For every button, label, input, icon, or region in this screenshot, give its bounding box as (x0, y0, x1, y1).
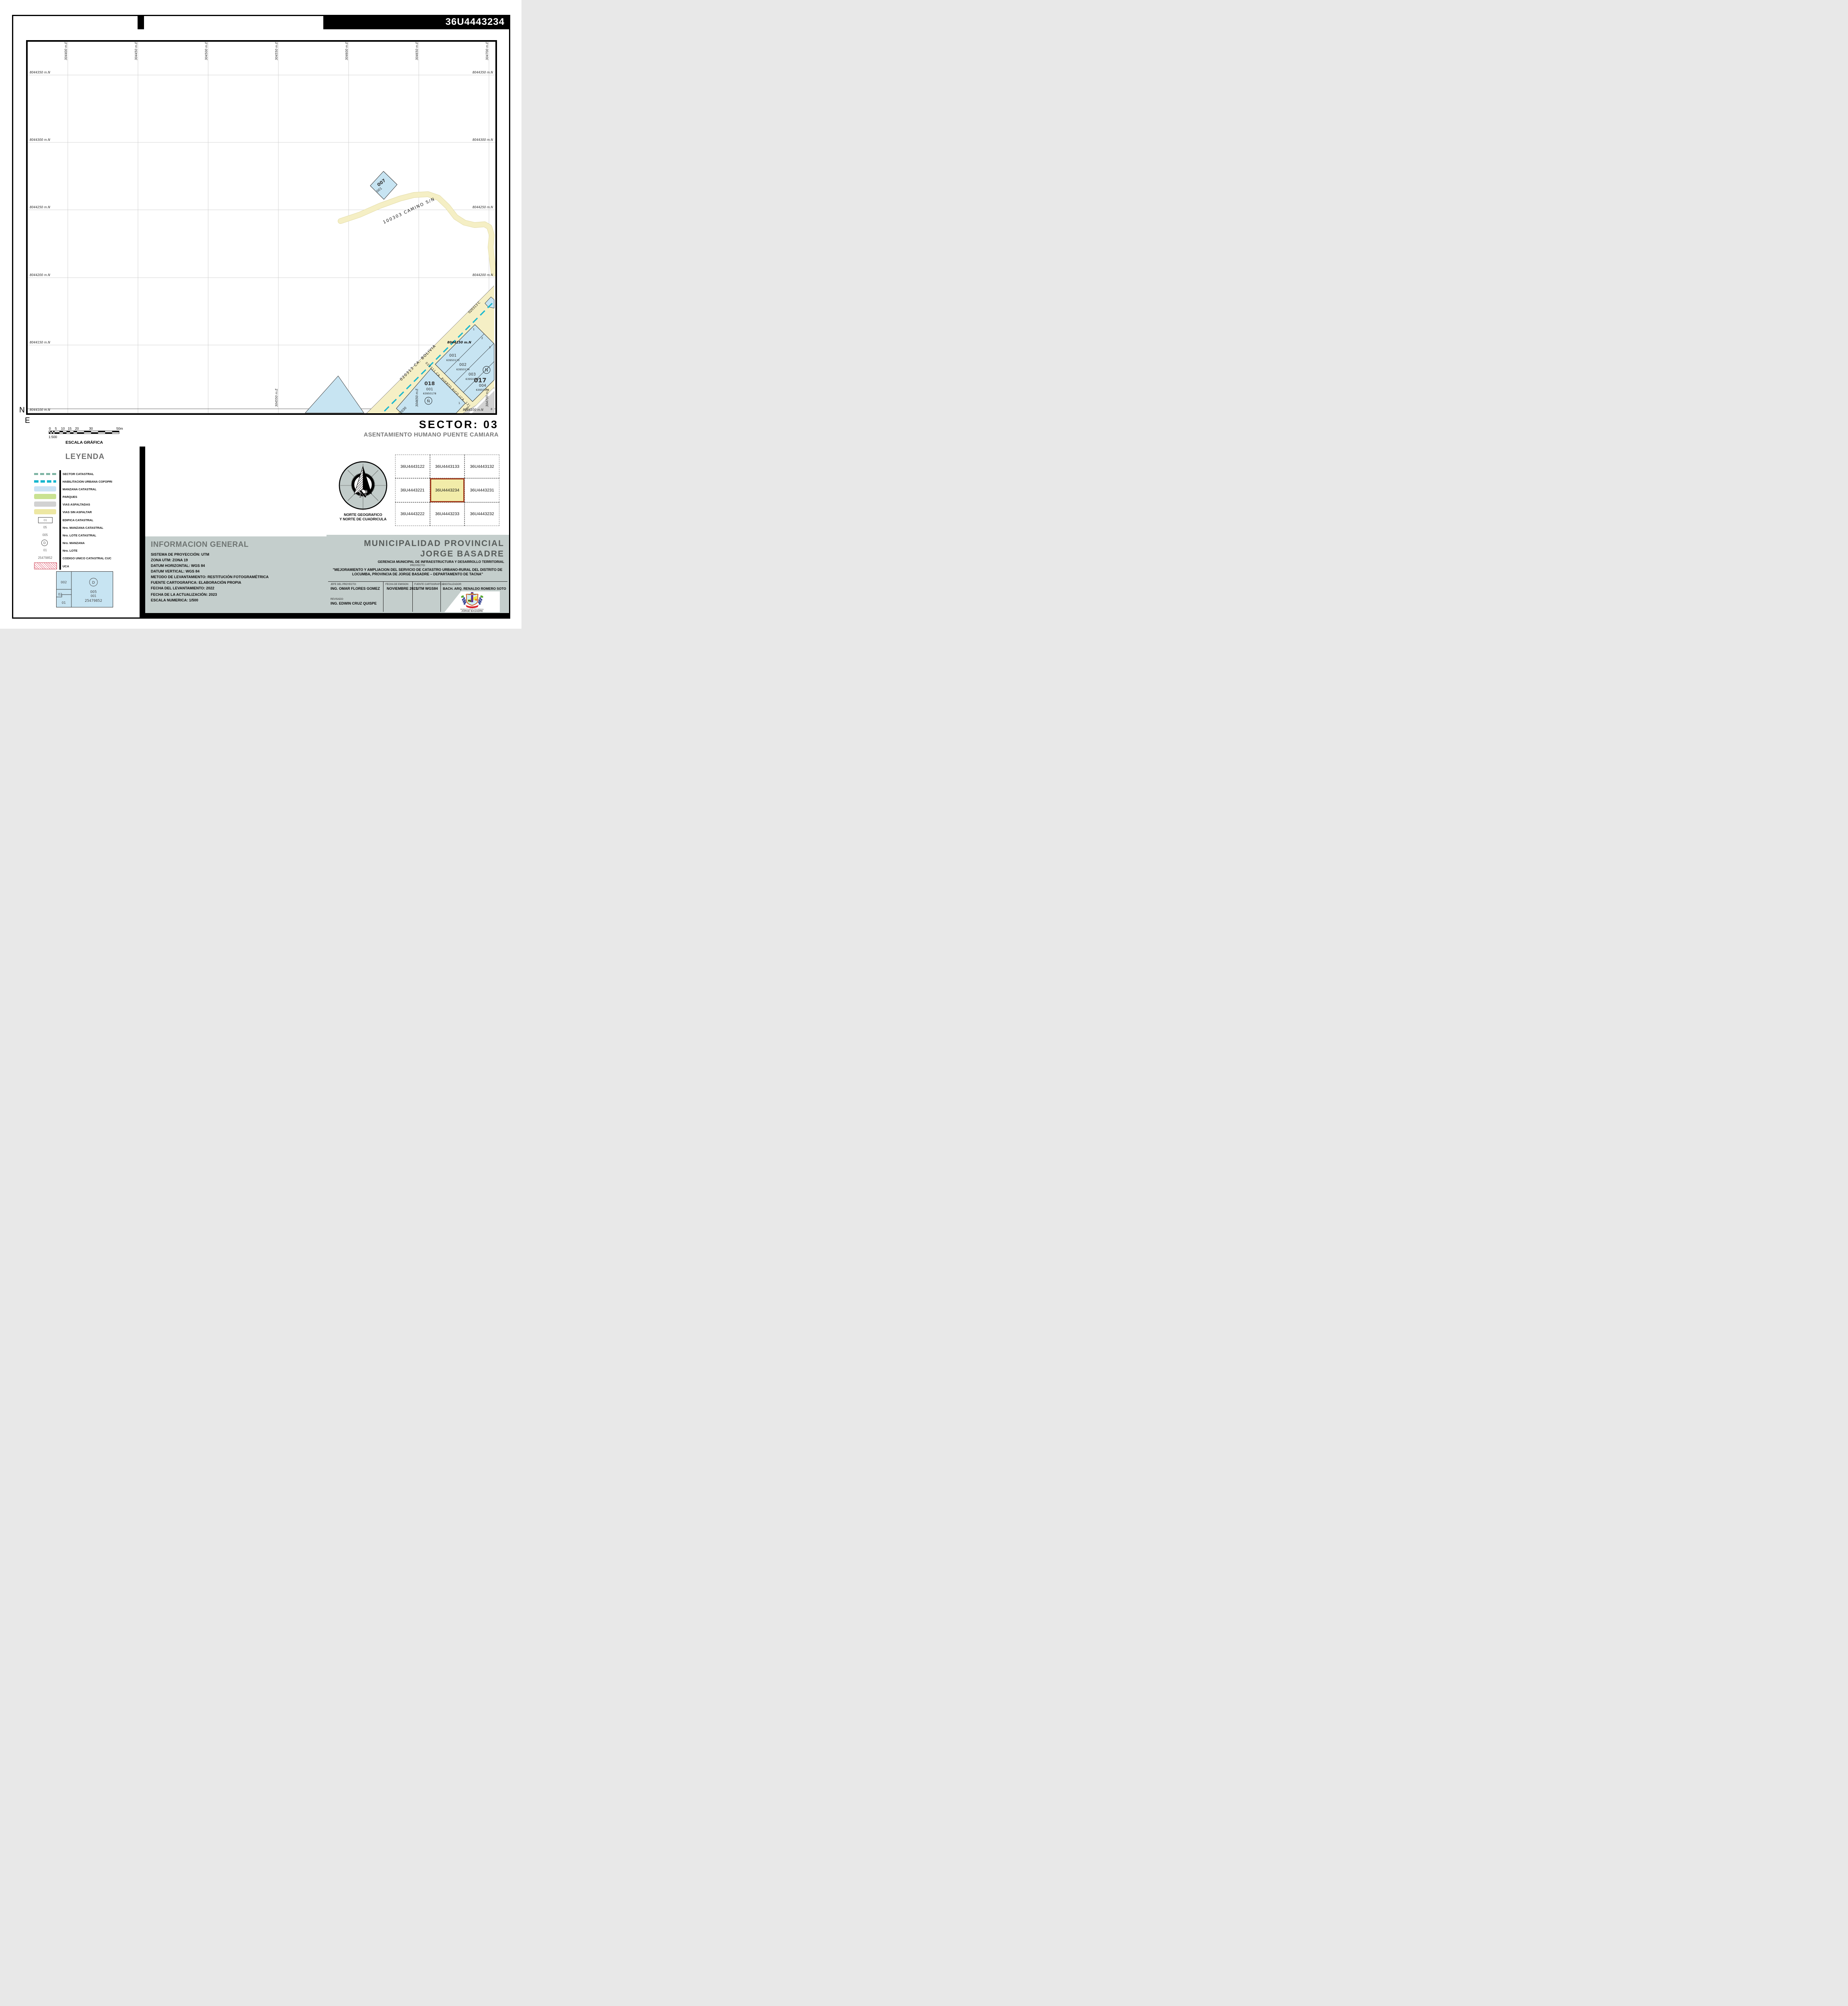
svg-text:304650 m.E: 304650 m.E (415, 388, 419, 407)
svg-text:3: 3 (489, 346, 491, 349)
info-panel: INFORMACION GENERAL SISTEMA DE PROYECCIÓ… (145, 536, 327, 613)
svg-text:JORGE BASADRE: JORGE BASADRE (461, 610, 483, 612)
svg-text:8044350 m.N: 8044350 m.N (473, 71, 493, 74)
legend-swatch-nro-manzana: D (41, 540, 48, 546)
svg-text:304550 m.E: 304550 m.E (275, 388, 278, 407)
svg-text:304550 m.E: 304550 m.E (275, 42, 278, 60)
block-triangle (305, 376, 364, 413)
index-cell: 36U4443232 (465, 502, 499, 526)
scale-tick: 30 (89, 426, 93, 430)
svg-text:01: 01 (62, 601, 66, 605)
scale-tick: 10 (61, 426, 65, 430)
legend-label: VIAS SIN ASFALTAR (63, 510, 92, 514)
field-value: BACH. ARQ. RENALDO ROMERO SOTO (443, 587, 506, 591)
legend-swatch-cuc: 25479852 (34, 556, 56, 560)
sheet-code: 36U4443234 (446, 16, 505, 28)
vertical-divider (140, 447, 145, 619)
legend-example-diagram: 002 02 01 D 005 001 25479852 (56, 571, 113, 609)
svg-text:004: 004 (479, 384, 486, 388)
legend-label: Nro. LOTE CATASTRAL (63, 534, 96, 537)
index-cell: 36U4443233 (430, 502, 465, 526)
svg-text:304400 m.E: 304400 m.E (64, 42, 68, 60)
compass-caption: NORTE GEOGRAFICOY NORTE DE CUADRICULA (319, 513, 407, 522)
table-vline (383, 581, 383, 612)
legend-label: EDIFICA CATASTRAL (63, 518, 93, 522)
field-label: FUENTE CARTOGRAFICA: (414, 583, 444, 586)
svg-text:017: 017 (474, 377, 486, 384)
scale-bar: 0 5 10 15 20 30 50m (43, 426, 132, 445)
svg-text:001: 001 (91, 594, 97, 598)
svg-text:1: 1 (458, 402, 460, 405)
field-label: FECHA DE EMISION (385, 583, 408, 586)
svg-text:8044200 m.N: 8044200 m.N (30, 273, 50, 277)
svg-text:304600 m.E: 304600 m.E (345, 42, 349, 60)
field-label: JEFE DEL PROYECTO: (331, 583, 357, 586)
svg-text:001: 001 (449, 353, 456, 358)
svg-text:304450 m.E: 304450 m.E (134, 42, 138, 60)
svg-text:8044300 m.N: 8044300 m.N (30, 138, 50, 142)
map-canvas[interactable]: 007 001 100303 CAMINO S/N 020313 CA. BOL… (28, 42, 495, 413)
info-line: DATUM HORIZONTAL: WGS 84 (151, 564, 205, 568)
scale-tick: 20 (75, 426, 79, 430)
scale-ratio: 1:500 (49, 435, 57, 439)
scale-tick: 5 (55, 426, 57, 430)
svg-text:304650 m.E: 304650 m.E (415, 42, 419, 60)
north-arrow: N (338, 461, 388, 511)
legend-label: Nro. MANZANA CATASTRAL (63, 526, 103, 530)
legend-rule (59, 470, 61, 570)
legend-swatch-nro-manzana-cat: 05 (34, 526, 56, 529)
legend-swatch-manzana (34, 486, 56, 491)
index-cell: 36U4443132 (465, 455, 499, 478)
info-line: FUENTE CARTOGRAFICA: ELABORACIÓN PROPIA (151, 581, 241, 585)
info-line: METODO DE LEVANTAMIENTO: RESTITUCIÓN FOT… (151, 575, 269, 579)
index-cell: 36U4443122 (395, 455, 430, 478)
svg-text:304700 m.E: 304700 m.E (485, 42, 489, 60)
axis-label-n: N (19, 406, 25, 415)
legend-swatch-parques (34, 494, 56, 499)
info-line: ZONA UTM: ZONA 19 (151, 558, 188, 562)
legend-label: HABILITACION URBANA COFOPRI (63, 480, 112, 483)
legend-swatch-vias-sin (34, 509, 56, 514)
svg-text:63950176: 63950176 (476, 388, 489, 392)
svg-text:8044250 m.N: 8044250 m.N (473, 205, 493, 209)
settlement-title: ASENTAMIENTO HUMANO PUENTE CAMIARA (364, 432, 499, 438)
svg-text:8044100 m.N: 8044100 m.N (30, 408, 50, 412)
svg-text:8044350 m.N: 8044350 m.N (30, 71, 50, 74)
field-value: ING. OMAR FLORES GOMEZ (331, 587, 380, 591)
axis-label-e: E (25, 416, 30, 425)
svg-text:25479852: 25479852 (85, 599, 102, 603)
header-left-block (138, 15, 144, 29)
legend-swatch-nro-lote-cat: 005 (34, 533, 56, 537)
bottom-bar (140, 613, 510, 619)
svg-text:003: 003 (469, 372, 476, 377)
legend-swatch-nro-lote: 01 (34, 548, 56, 552)
legend-swatch-uca (34, 562, 57, 569)
legend-label: CODIGO UNICO CATASTRAL CUC (63, 556, 112, 560)
field-value: UTM WGS84 (416, 587, 438, 591)
svg-text:8044100 m.N: 8044100 m.N (463, 408, 483, 412)
legend-label: UCA (63, 564, 69, 568)
svg-text:001: 001 (426, 388, 433, 392)
map-frame: 007 001 100303 CAMINO S/N 020313 CA. BOL… (26, 40, 497, 415)
scale-tick: 50m (116, 426, 123, 430)
table-vline (440, 581, 441, 612)
block-007: 007 001 (370, 171, 397, 199)
project-label: PROYECTO: (327, 564, 509, 567)
legend-label: PARQUES (63, 495, 77, 499)
svg-text:304500 m.E: 304500 m.E (205, 42, 208, 60)
svg-text:1: 1 (473, 328, 475, 331)
index-cell: 36U4443133 (430, 455, 465, 478)
sector-title: SECTOR: 03 (419, 418, 499, 431)
svg-text:2: 2 (481, 337, 483, 340)
svg-text:63950173: 63950173 (446, 359, 459, 362)
scale-tick: 0 (49, 426, 51, 430)
field-label: REVISADO: (331, 598, 344, 601)
scale-bar-checker (49, 431, 119, 434)
table-hline (328, 581, 507, 582)
easting-labels-top: 304400 m.E 304450 m.E 304500 m.E 304550 … (64, 42, 489, 60)
svg-text:005: 005 (90, 590, 97, 594)
legend-label: SECTOR CATASTRAL (63, 472, 94, 476)
legend-swatch-sector (34, 473, 56, 475)
muni-subtitle: GERENCIA MUNICIPAL DE INFRAESTRUCTURA Y … (378, 560, 504, 564)
legend-label: MANZANA CATASTRAL (63, 487, 96, 491)
svg-text:8044250 m.N: 8044250 m.N (30, 205, 50, 209)
legend-swatch-cofopri (34, 480, 56, 483)
sheet-index-grid: 36U4443122 36U4443133 36U4443132 36U4443… (395, 455, 499, 526)
svg-text:018: 018 (424, 380, 435, 386)
scale-tick: 15 (68, 426, 72, 430)
legend-label: Nro. LOTE (63, 549, 77, 552)
info-line: DATUM VERTICAL: WGS 84 (151, 569, 199, 573)
index-cell: 36U4443221 (395, 478, 430, 502)
corner-8: 8 (491, 408, 492, 411)
project-title: "MEJORAMIENTO Y AMPLIACION DEL SERVICIO … (330, 568, 505, 576)
svg-text:N: N (485, 367, 488, 373)
info-line: SISTEMA DE PROYECCIÓN: UTM (151, 552, 209, 556)
legend-label: VIAS ASFALTADAS (63, 503, 90, 506)
index-cell-active: 36U4443234 (430, 478, 465, 502)
muni-title-2: JORGE BASADRE (420, 549, 504, 559)
field-value: ING. EDWIN CRUZ QUISPE (331, 601, 377, 605)
svg-text:002: 002 (61, 581, 67, 584)
sheet-code-bar: 36U4443234 (323, 15, 510, 29)
svg-text:8044200 m.N: 8044200 m.N (473, 273, 493, 277)
legend-swatch-vias-asf (34, 501, 56, 507)
svg-text:Ñ: Ñ (427, 398, 430, 404)
map-sheet-page: 36U4443234 (0, 0, 521, 629)
index-cell: 36U4443222 (395, 502, 430, 526)
svg-text:8044150 m.N: 8044150 m.N (30, 341, 50, 344)
index-cell: 36U4443231 (465, 478, 499, 502)
field-value: NOVIEMBRE 2023 (387, 587, 418, 591)
info-title: INFORMACION GENERAL (151, 540, 249, 549)
scale-title: ESCALA GRÁFICA (65, 440, 103, 445)
legend-swatch-edifica: 01 (38, 517, 53, 523)
svg-text:D: D (92, 581, 95, 585)
legend-title: LEYENDA (65, 453, 105, 461)
compass-n-letter: N (359, 488, 367, 500)
svg-text:63950174: 63950174 (456, 368, 469, 371)
svg-text:02: 02 (58, 593, 62, 596)
legend-label: Nro. MANZANA (63, 541, 85, 545)
info-line: ESCALA NUMERICA: 1/500 (151, 598, 198, 602)
muni-title-1: MUNICIPALIDAD PROVINCIAL (364, 539, 504, 548)
svg-text:002: 002 (459, 363, 467, 367)
svg-text:63950178: 63950178 (423, 392, 436, 395)
table-vline (412, 581, 413, 612)
info-line: FECHA DEL LEVANTAMIENTO: 2022 (151, 586, 214, 590)
svg-text:8044150 m.N: 8044150 m.N (447, 341, 471, 344)
northing-labels-left: 8044350 m.N 8044300 m.N 8044250 m.N 8044… (30, 71, 50, 412)
info-line: FECHA DE LA ACTUALIZACIÓN: 2023 (151, 593, 217, 597)
field-label: DIGITALIZADOR: (443, 583, 462, 586)
svg-text:8044300 m.N: 8044300 m.N (473, 138, 493, 142)
